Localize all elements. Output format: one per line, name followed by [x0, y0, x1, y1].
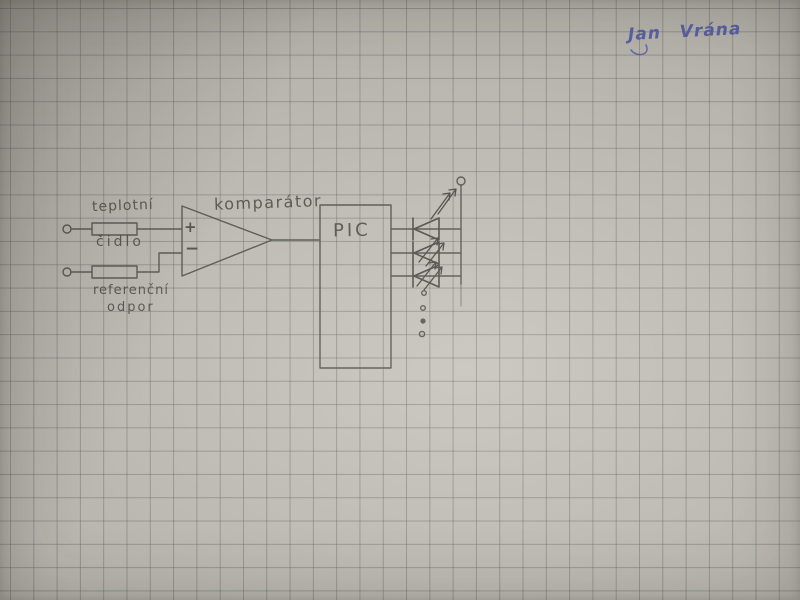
led-1-emission-arrows — [431, 189, 456, 219]
input-terminal-bottom — [63, 268, 71, 276]
continuation-dots — [419, 291, 426, 337]
label-comparator: komparátor — [214, 193, 323, 213]
input-terminal-top — [63, 225, 71, 233]
led-2-emission-arrows — [419, 238, 444, 266]
comparator-minus-input-sign: − — [185, 241, 199, 258]
reference-resistor — [92, 266, 137, 278]
label-reference-resistor-line2: odpor — [107, 301, 155, 314]
label-temperature-sensor-line1: teplotní — [92, 198, 154, 214]
comparator-plus-input-sign: + — [184, 220, 197, 235]
label-pic-microcontroller: PIC — [333, 222, 371, 241]
label-temperature-sensor-line2: čidlo — [96, 235, 144, 249]
wire-reference-to-minus — [137, 253, 182, 272]
output-terminal — [457, 177, 465, 185]
label-reference-resistor-line1: referenční — [93, 284, 169, 297]
signature-flourish — [631, 45, 647, 55]
photo-of-hand-drawn-schematic: teplotní čidlo referenční odpor komparát… — [0, 0, 800, 600]
